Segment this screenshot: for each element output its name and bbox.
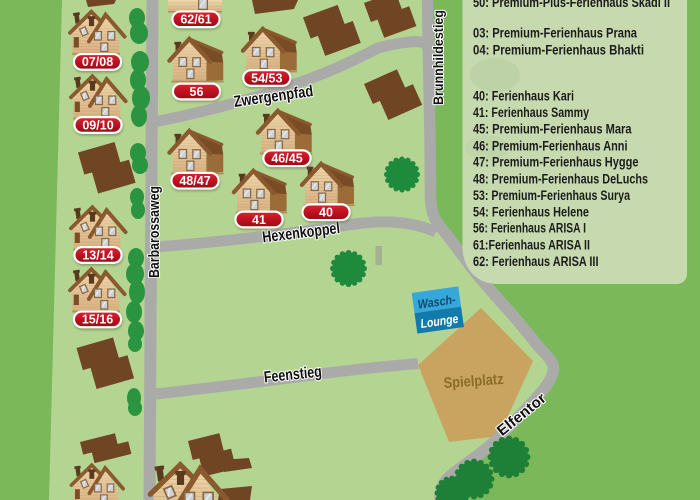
svg-text:41: Ferienhaus Sammy: 41: Ferienhaus Sammy — [473, 105, 589, 120]
svg-text:62: Ferienhaus ARISA III: 62: Ferienhaus ARISA III — [473, 254, 599, 269]
svg-text:09/10: 09/10 — [82, 118, 113, 132]
svg-text:53: Premium-Ferienhaus Surya: 53: Premium-Ferienhaus Surya — [473, 188, 630, 203]
svg-text:15/16: 15/16 — [82, 313, 113, 327]
svg-text:40: 40 — [319, 206, 333, 220]
svg-text:Brunnhildestieg: Brunnhildestieg — [430, 10, 446, 105]
svg-text:50: Premium-Plus-Ferienhaus Sk: 50: Premium-Plus-Ferienhaus Skadi II — [473, 0, 670, 10]
svg-text:40: Ferienhaus Kari: 40: Ferienhaus Kari — [473, 89, 574, 104]
svg-text:46: Premium-Ferienhaus Anni: 46: Premium-Ferienhaus Anni — [473, 139, 628, 154]
svg-text:Barbarossaweg: Barbarossaweg — [146, 186, 163, 278]
svg-text:48/47: 48/47 — [179, 174, 210, 188]
svg-text:45: Premium-Ferienhaus Mara: 45: Premium-Ferienhaus Mara — [473, 122, 632, 137]
svg-text:13/14: 13/14 — [82, 248, 113, 262]
svg-text:61:Ferienhaus ARISA II: 61:Ferienhaus ARISA II — [473, 238, 590, 253]
svg-text:07/08: 07/08 — [82, 55, 113, 69]
svg-text:56: 56 — [190, 85, 204, 99]
svg-text:46/45: 46/45 — [271, 152, 302, 166]
svg-text:03: Premium-Ferienhaus Prana: 03: Premium-Ferienhaus Prana — [473, 26, 637, 41]
svg-text:41: 41 — [252, 213, 266, 227]
svg-text:04: Premium-Ferienhaus Bhakti: 04: Premium-Ferienhaus Bhakti — [473, 43, 644, 58]
svg-text:54: Ferienhaus Helene: 54: Ferienhaus Helene — [473, 205, 589, 220]
svg-text:62/61: 62/61 — [180, 13, 211, 27]
svg-text:47: Premium-Ferienhaus Hygge: 47: Premium-Ferienhaus Hygge — [473, 155, 639, 170]
svg-text:56: Ferienhaus ARISA I: 56: Ferienhaus ARISA I — [473, 221, 586, 236]
svg-text:48: Premium-Ferienhaus DeLuchs: 48: Premium-Ferienhaus DeLuchs — [473, 172, 648, 187]
svg-text:54/53: 54/53 — [251, 71, 282, 85]
